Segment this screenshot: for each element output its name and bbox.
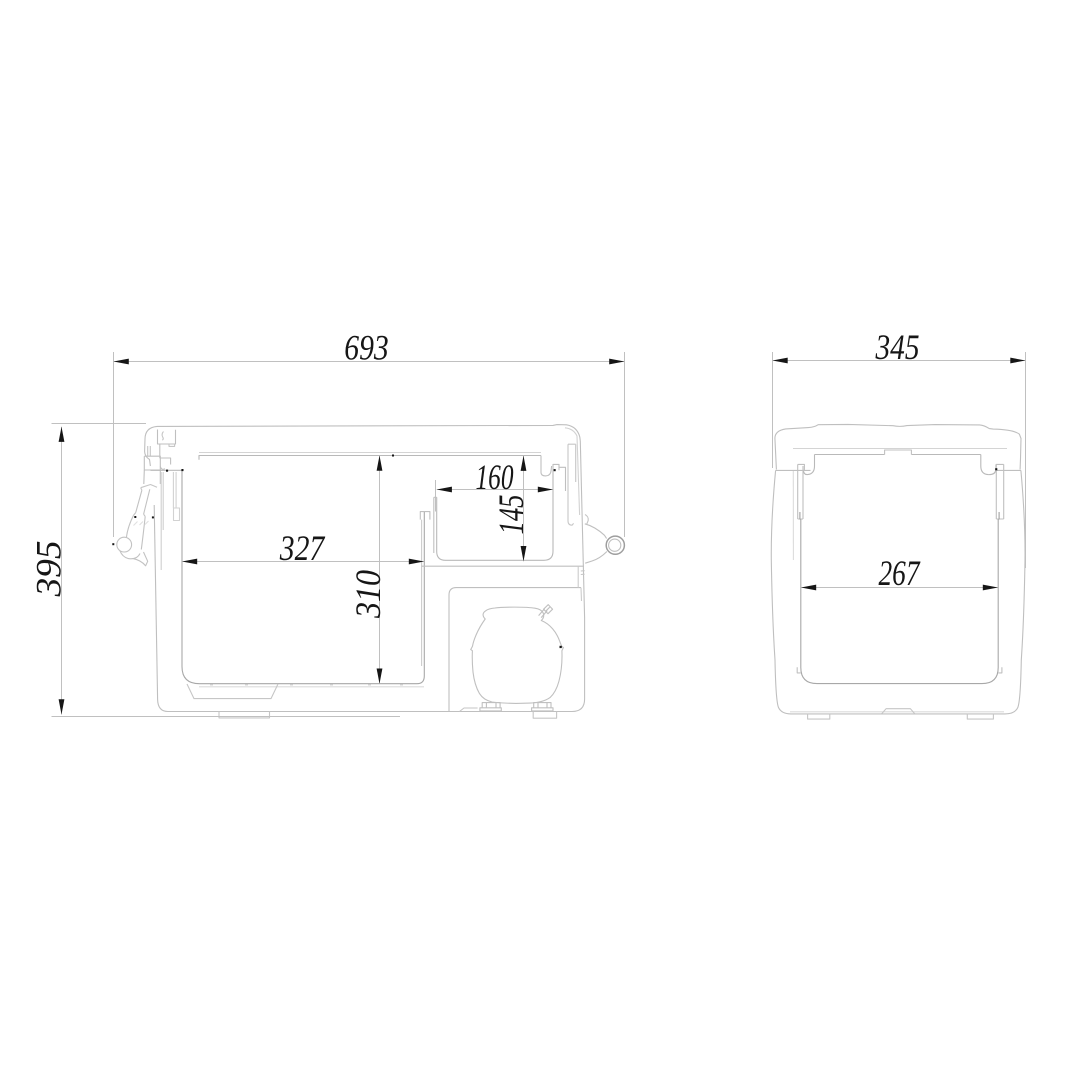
svg-text:345: 345 xyxy=(875,327,920,367)
svg-text:310: 310 xyxy=(348,570,388,619)
svg-text:693: 693 xyxy=(344,328,389,368)
svg-text:395: 395 xyxy=(29,541,69,598)
svg-text:145: 145 xyxy=(491,495,531,535)
svg-text:160: 160 xyxy=(476,457,514,497)
svg-text:267: 267 xyxy=(879,553,922,593)
svg-text:327: 327 xyxy=(279,528,326,568)
